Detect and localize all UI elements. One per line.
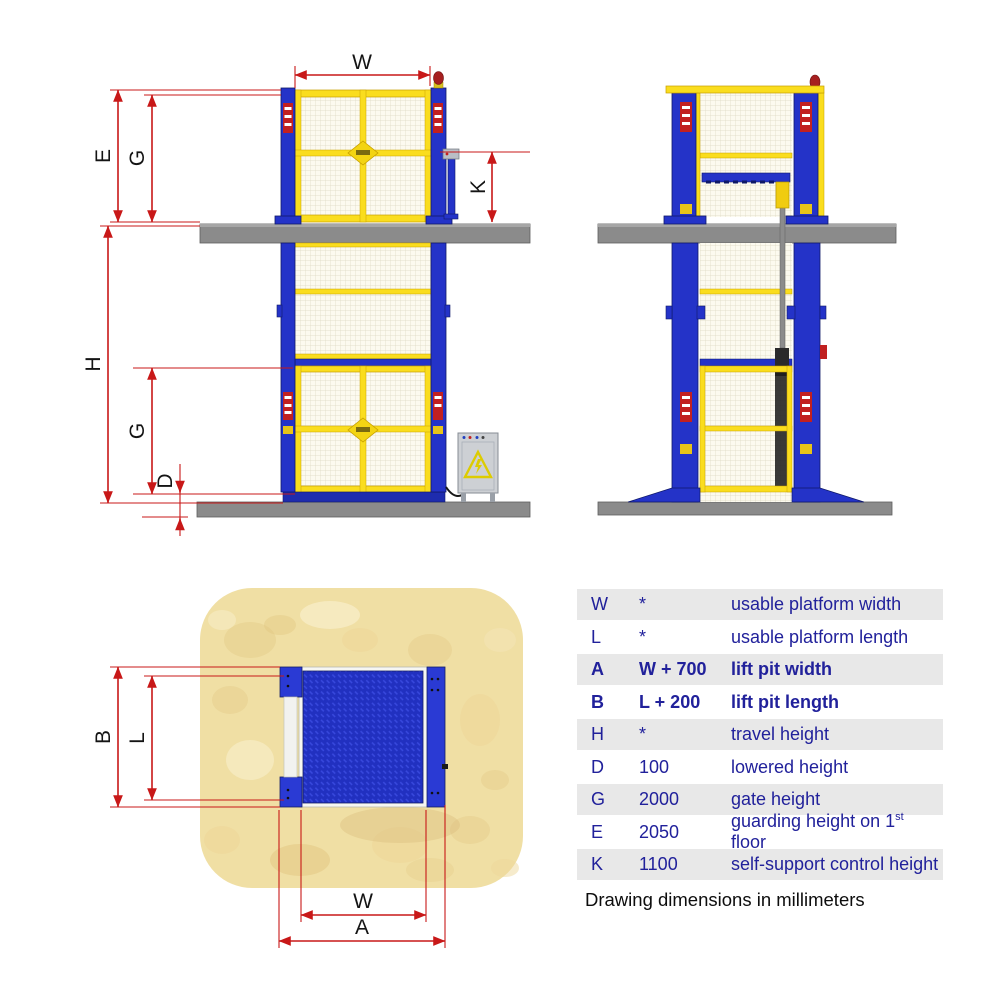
side-upper-slab-highlight bbox=[598, 224, 896, 227]
table-row-L: L * usable platform length bbox=[577, 622, 943, 653]
row-symbol: W bbox=[577, 594, 639, 615]
row-symbol: B bbox=[577, 692, 639, 713]
dim-label-W: W bbox=[352, 51, 372, 74]
latch-mark bbox=[442, 764, 448, 769]
dim-label-G: G bbox=[126, 150, 149, 166]
dim-front-G-lower: G bbox=[126, 368, 295, 494]
row-value: W + 700 bbox=[639, 659, 731, 680]
table-row-E: E 2050 guarding height on 1st floor bbox=[577, 817, 943, 848]
dim-front-E: E bbox=[92, 90, 281, 222]
row-description: guarding height on 1st floor bbox=[731, 811, 943, 853]
lifting-mast-rod bbox=[780, 206, 785, 348]
row-symbol: D bbox=[577, 757, 639, 778]
row-symbol: E bbox=[577, 822, 639, 843]
row-description: self-support control height bbox=[731, 854, 943, 875]
row-symbol: L bbox=[577, 627, 639, 648]
desc-superscript: st bbox=[895, 811, 904, 823]
table-row-W: W * usable platform width bbox=[577, 589, 943, 620]
gate-diamond-mark bbox=[356, 150, 370, 155]
row-description: lift pit length bbox=[731, 692, 943, 713]
desc-text: floor bbox=[731, 832, 766, 852]
dim-label-H: H bbox=[82, 356, 105, 371]
front-upper-gate bbox=[293, 90, 433, 222]
row-value: L + 200 bbox=[639, 692, 731, 713]
table-row-H: H * travel height bbox=[577, 719, 943, 750]
row-symbol: H bbox=[577, 724, 639, 745]
row-description: travel height bbox=[731, 724, 943, 745]
row-description: gate height bbox=[731, 789, 943, 810]
row-value: 2000 bbox=[639, 789, 731, 810]
front-view: W E G H G D bbox=[82, 51, 530, 536]
drawing-sheet: W E G H G D bbox=[0, 0, 1000, 1000]
row-description: usable platform length bbox=[731, 627, 943, 648]
dim-label-D: D bbox=[154, 473, 177, 488]
dimension-spec-table: W * usable platform width L * usable pla… bbox=[577, 589, 943, 882]
beacon-light bbox=[434, 72, 444, 89]
column-safety-sticker bbox=[283, 392, 293, 434]
front-upper-slab-highlight bbox=[200, 224, 530, 227]
corner-post bbox=[280, 667, 302, 697]
control-cabinet bbox=[446, 433, 498, 502]
units-note: Drawing dimensions in millimeters bbox=[585, 889, 865, 911]
side-left-column bbox=[664, 93, 706, 502]
dim-label-K: K bbox=[467, 180, 490, 194]
side-lower-floor-slab bbox=[598, 502, 892, 515]
dim-label-W: W bbox=[353, 890, 373, 913]
dim-front-G-upper: G bbox=[126, 95, 281, 222]
side-rail-left bbox=[284, 697, 297, 777]
dim-label-E: E bbox=[92, 149, 115, 163]
plan-platform bbox=[280, 667, 448, 807]
side-left-foot bbox=[628, 488, 700, 502]
table-row-K: K 1100 self-support control height bbox=[577, 849, 943, 880]
table-row-A: A W + 700 lift pit width bbox=[577, 654, 943, 685]
dim-front-W: W bbox=[295, 51, 430, 88]
column-safety-sticker bbox=[283, 103, 293, 133]
side-view bbox=[598, 75, 896, 515]
front-lower-gate bbox=[293, 366, 433, 492]
front-platform-base bbox=[283, 492, 445, 502]
row-value: * bbox=[639, 724, 731, 745]
row-description: lift pit width bbox=[731, 659, 943, 680]
gate-diamond-mark bbox=[356, 427, 370, 432]
side-rail-right bbox=[427, 667, 445, 807]
side-top-cap bbox=[666, 86, 824, 93]
dim-label-A: A bbox=[355, 916, 369, 939]
dim-label-B: B bbox=[92, 730, 115, 744]
row-description: lowered height bbox=[731, 757, 943, 778]
column-safety-sticker bbox=[433, 103, 443, 133]
row-description: usable platform width bbox=[731, 594, 943, 615]
desc-text: guarding height on 1 bbox=[731, 811, 895, 831]
side-right-foot bbox=[792, 488, 864, 502]
dim-front-D: D bbox=[142, 464, 188, 536]
table-row-D: D 100 lowered height bbox=[577, 752, 943, 783]
hoist-unit bbox=[776, 182, 789, 208]
corner-post bbox=[280, 777, 302, 807]
dim-front-H: H bbox=[82, 226, 283, 503]
dim-label-L: L bbox=[126, 732, 149, 744]
front-lower-floor-slab bbox=[197, 502, 530, 517]
plan-view: B L W A bbox=[92, 588, 523, 948]
dim-label-G: G bbox=[126, 423, 149, 439]
row-symbol: G bbox=[577, 789, 639, 810]
front-shaft-mesh bbox=[295, 243, 431, 366]
row-symbol: K bbox=[577, 854, 639, 875]
row-value: 1100 bbox=[639, 854, 731, 875]
table-row-B: B L + 200 lift pit length bbox=[577, 687, 943, 718]
row-value: * bbox=[639, 594, 731, 615]
emergency-stop bbox=[820, 345, 827, 359]
side-right-column bbox=[786, 75, 828, 502]
platform-deck bbox=[303, 671, 423, 803]
column-safety-sticker bbox=[433, 392, 443, 434]
row-value: * bbox=[639, 627, 731, 648]
row-symbol: A bbox=[577, 659, 639, 680]
row-value: 2050 bbox=[639, 822, 731, 843]
row-value: 100 bbox=[639, 757, 731, 778]
